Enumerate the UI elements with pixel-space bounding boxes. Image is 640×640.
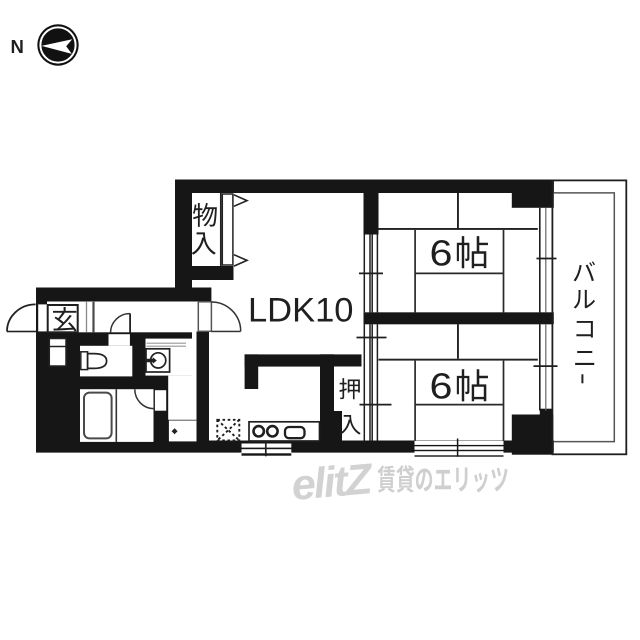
svg-text:elitZ: elitZ <box>290 455 376 510</box>
svg-text:LDK10: LDK10 <box>248 292 354 330</box>
svg-text:N: N <box>11 36 24 57</box>
svg-text:6: 6 <box>430 366 453 407</box>
svg-text:6: 6 <box>430 233 453 274</box>
